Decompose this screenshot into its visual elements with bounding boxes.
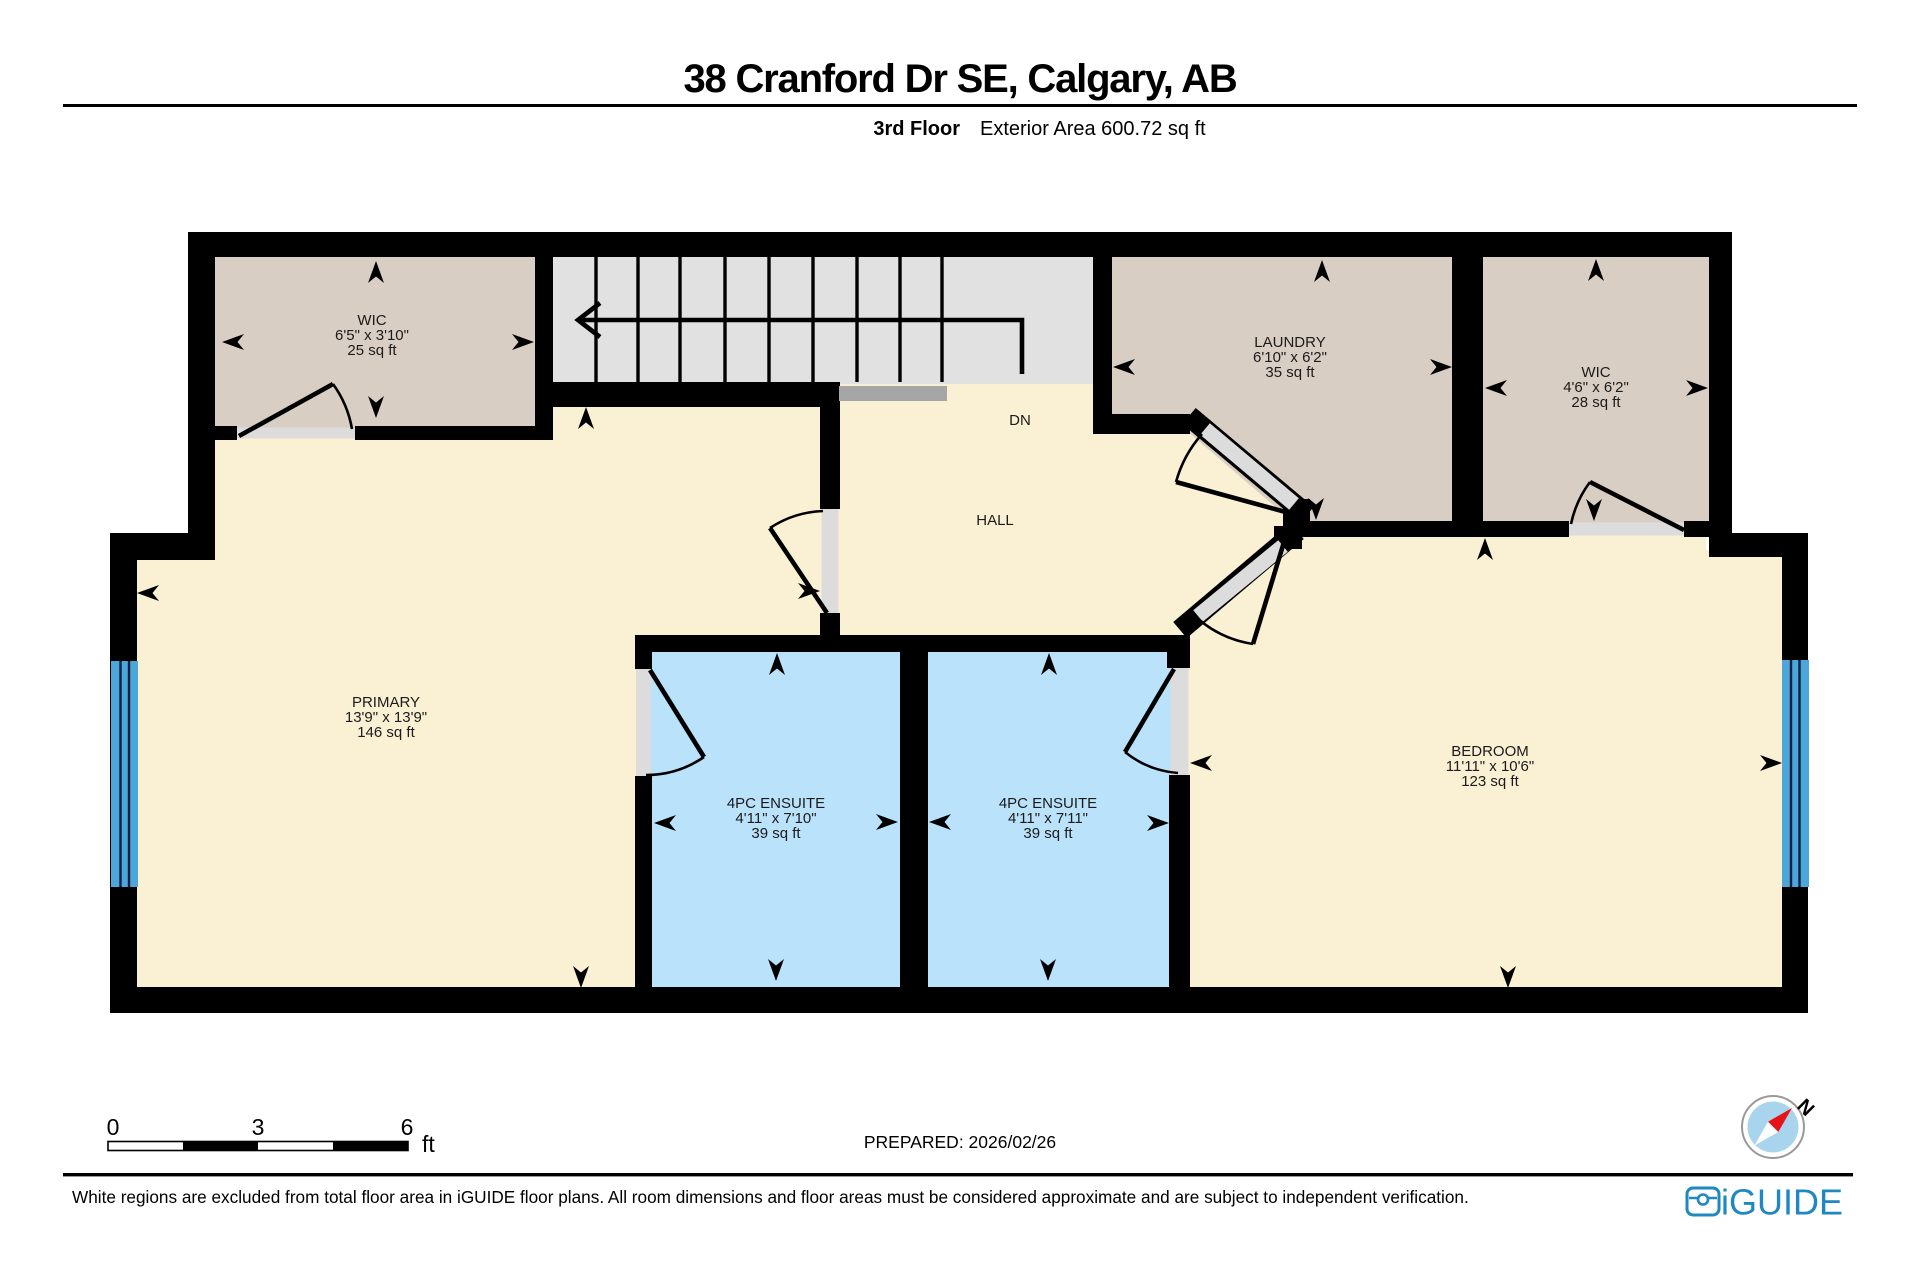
svg-text:3: 3: [252, 1114, 265, 1140]
svg-text:White regions are excluded fro: White regions are excluded from total fl…: [72, 1187, 1469, 1207]
svg-text:6: 6: [401, 1114, 414, 1140]
svg-text:38 Cranford Dr SE, Calgary, AB: 38 Cranford Dr SE, Calgary, AB: [683, 57, 1236, 101]
svg-text:iGUIDE: iGUIDE: [1721, 1182, 1843, 1223]
svg-text:DN: DN: [1009, 412, 1031, 429]
svg-text:0: 0: [107, 1114, 120, 1140]
svg-text:HALL: HALL: [976, 512, 1014, 529]
svg-text:3rd Floor: 3rd Floor: [873, 118, 960, 140]
svg-text:ft: ft: [422, 1131, 435, 1157]
svg-text:PREPARED: 2026/02/26: PREPARED: 2026/02/26: [864, 1132, 1056, 1152]
svg-text:Exterior Area 600.72 sq ft: Exterior Area 600.72 sq ft: [980, 118, 1206, 140]
